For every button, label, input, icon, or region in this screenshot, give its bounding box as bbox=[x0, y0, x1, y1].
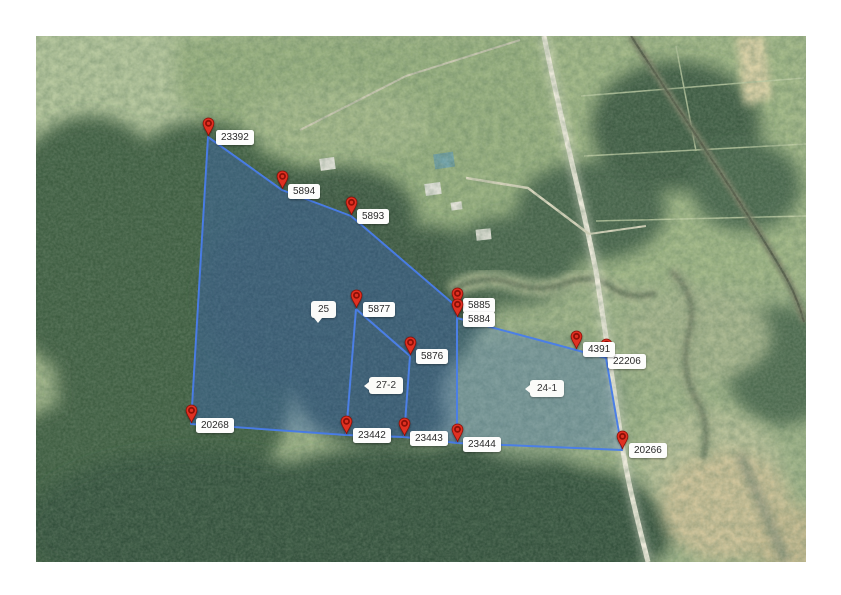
pin-label-20268: 20268 bbox=[196, 418, 234, 433]
pin-label-23392: 23392 bbox=[216, 130, 254, 145]
pin-icon bbox=[569, 329, 584, 350]
parcel-boundary-overlay[interactable] bbox=[36, 36, 806, 562]
map-canvas[interactable]: 2527-224-1 23392589458935877588558845876… bbox=[36, 36, 806, 562]
pin-label-23444: 23444 bbox=[463, 437, 501, 452]
parcel-label-25[interactable]: 25 bbox=[311, 301, 336, 318]
pin-label-5884: 5884 bbox=[463, 312, 495, 327]
pin-label-5876: 5876 bbox=[416, 349, 448, 364]
pin-label-5885: 5885 bbox=[463, 298, 495, 313]
pin-icon bbox=[349, 288, 364, 309]
parcel-label-24-1[interactable]: 24-1 bbox=[530, 380, 564, 397]
pin-label-23442: 23442 bbox=[353, 428, 391, 443]
page: { "map": { "width": 770, "height": 526, … bbox=[0, 0, 841, 595]
pin-icon bbox=[615, 429, 630, 450]
pin-label-23443: 23443 bbox=[410, 431, 448, 446]
pin-label-5877: 5877 bbox=[363, 302, 395, 317]
pin-label-5893: 5893 bbox=[357, 209, 389, 224]
pin-label-5894: 5894 bbox=[288, 184, 320, 199]
parcel-label-27-2[interactable]: 27-2 bbox=[369, 377, 403, 394]
parcel-dark-tint bbox=[191, 137, 457, 443]
pin-icon bbox=[201, 116, 216, 137]
pin-icon bbox=[339, 414, 354, 435]
pin-label-20266: 20266 bbox=[629, 443, 667, 458]
pin-label-4391: 4391 bbox=[583, 342, 615, 357]
